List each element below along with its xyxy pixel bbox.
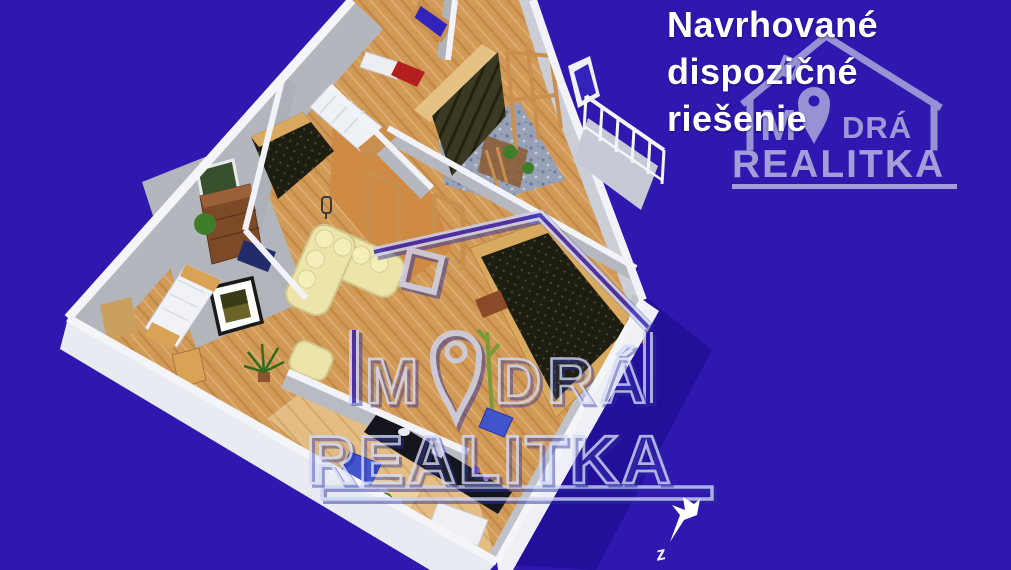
watermark-word-dra: DRÁ <box>495 345 652 417</box>
plant-on-dresser <box>194 213 216 235</box>
headline-line-2: dispozičné <box>667 48 1011 95</box>
corner-logo-underline <box>732 184 957 189</box>
watermark-word-m: M <box>365 345 418 417</box>
watermark-word-realitka: REALITKA <box>306 422 674 498</box>
corner-logo-word-realitka: REALITKA <box>732 143 945 186</box>
bath-plant <box>503 145 517 159</box>
picture-frame-yellow <box>210 278 262 334</box>
headline: Navrhované dispozičné riešenie <box>667 1 1011 142</box>
screenshot-root: { "header": { "line1": "Navrhované", "li… <box>0 0 1011 570</box>
headline-line-1: Navrhované <box>667 1 1011 48</box>
headline-line-3: riešenie <box>667 95 1011 142</box>
